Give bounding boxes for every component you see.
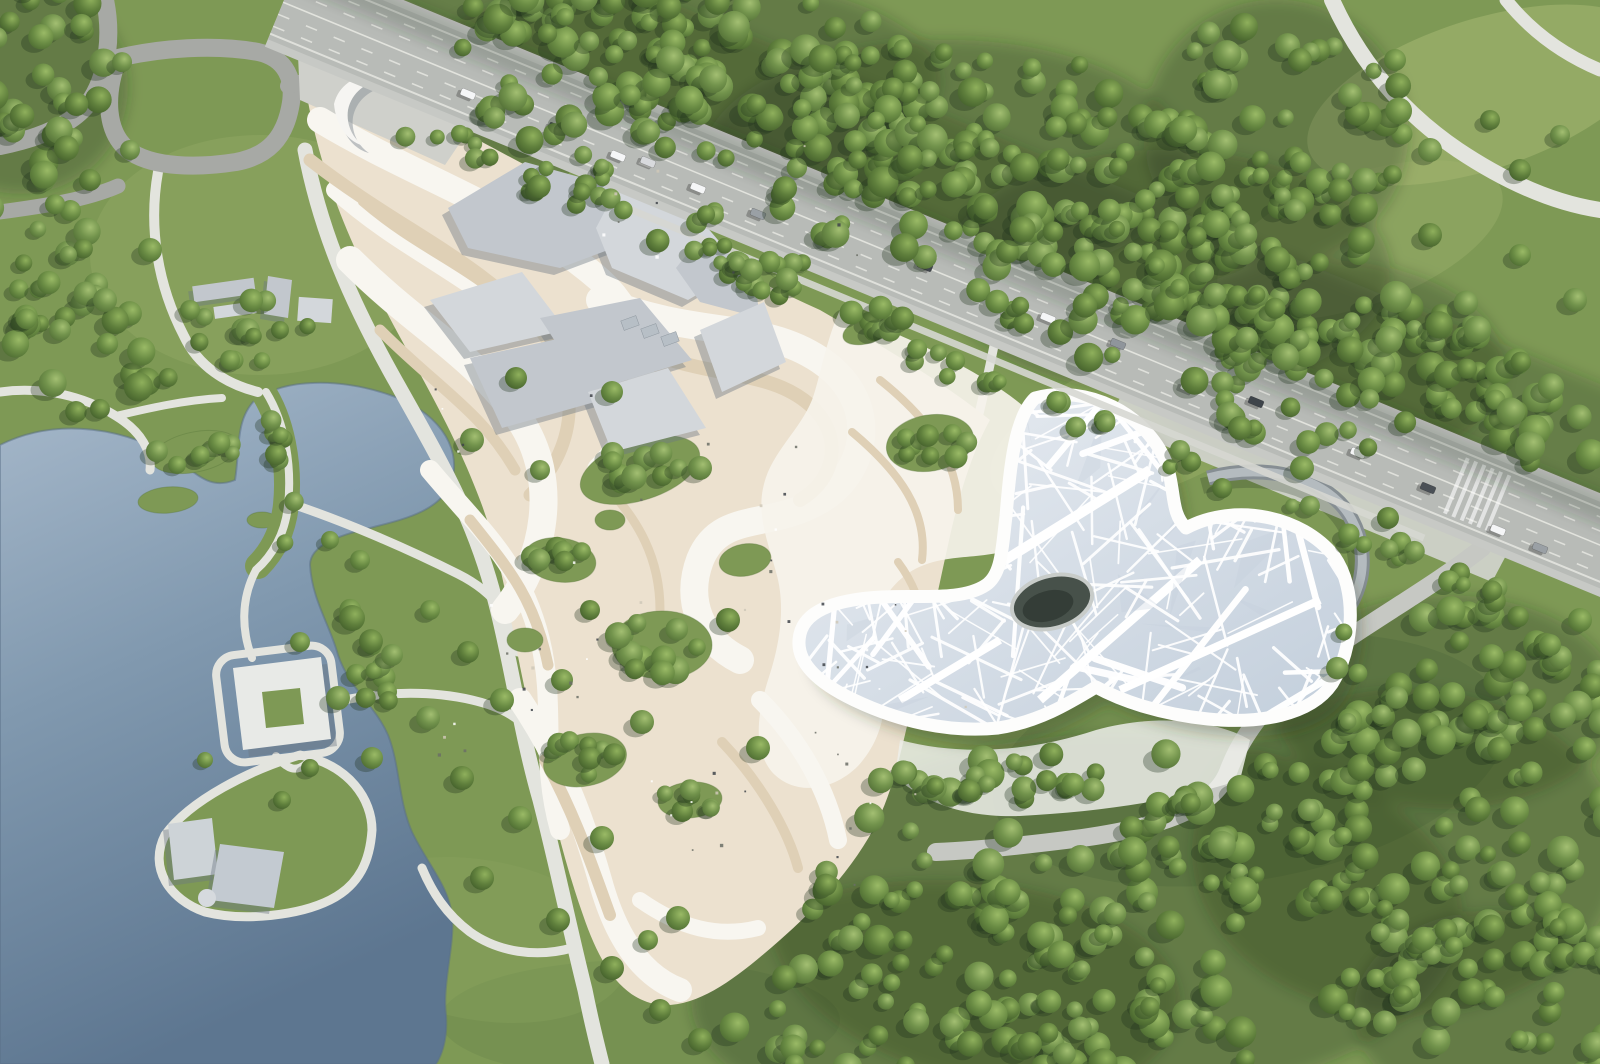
- tree-canopy: [1314, 369, 1333, 388]
- tree-canopy: [1352, 168, 1377, 193]
- tree-canopy: [958, 77, 988, 107]
- tree-canopy: [10, 103, 35, 128]
- tree-canopy: [1074, 343, 1103, 372]
- aerial-render: Aerial masterplan rendering — park, lake…: [0, 0, 1600, 1064]
- tree-canopy: [1411, 851, 1440, 880]
- tree-canopy: [861, 46, 880, 65]
- tree-canopy: [1272, 343, 1299, 370]
- person-dot: [670, 814, 672, 816]
- tree-canopy: [1262, 762, 1279, 779]
- tree-canopy: [891, 307, 914, 330]
- tree-canopy: [1479, 644, 1504, 669]
- tree-canopy: [1480, 110, 1500, 130]
- tree-canopy: [1550, 125, 1570, 145]
- tree-canopy: [1069, 250, 1100, 281]
- tree-canopy: [1497, 398, 1525, 426]
- person-dot: [462, 444, 464, 446]
- tree-canopy: [867, 112, 885, 130]
- person-dot: [804, 145, 806, 147]
- tree-canopy: [79, 169, 101, 191]
- tree-canopy: [1289, 762, 1310, 783]
- tree-canopy: [1376, 900, 1393, 917]
- tree-canopy: [1094, 924, 1113, 943]
- tree-canopy: [1234, 223, 1257, 246]
- person-dot: [769, 570, 772, 573]
- tree-canopy: [451, 125, 468, 142]
- tree-canopy: [1068, 1017, 1092, 1041]
- tree-canopy: [746, 94, 766, 114]
- tree-canopy: [573, 183, 591, 201]
- tree-canopy: [1359, 438, 1377, 456]
- tree-canopy: [717, 150, 734, 167]
- tree-canopy: [1140, 997, 1160, 1017]
- tree-canopy: [868, 768, 893, 793]
- tree-canopy: [2, 330, 30, 358]
- tree-canopy: [1404, 541, 1425, 562]
- tree-canopy: [1170, 440, 1190, 460]
- tree-canopy: [1186, 305, 1218, 337]
- tree-canopy: [815, 874, 837, 896]
- tree-canopy: [654, 137, 676, 159]
- tree-canopy: [899, 187, 917, 205]
- tree-canopy: [381, 644, 403, 666]
- tree-canopy: [1515, 431, 1545, 461]
- person-dot: [822, 603, 825, 606]
- tree-canopy: [54, 135, 79, 160]
- tree-canopy: [977, 52, 994, 69]
- tree-canopy: [939, 368, 956, 385]
- tree-canopy: [605, 622, 632, 649]
- tree-canopy: [720, 1012, 750, 1042]
- person-dot: [760, 504, 763, 507]
- tree-canopy: [1038, 990, 1062, 1014]
- tree-canopy: [1418, 223, 1442, 247]
- tree-canopy: [1285, 499, 1299, 513]
- tree-canopy: [1393, 985, 1412, 1004]
- tree-canopy: [1010, 153, 1039, 182]
- tree-canopy: [1071, 56, 1088, 73]
- tree-canopy: [127, 337, 155, 365]
- tree-canopy: [906, 881, 923, 898]
- person-dot: [914, 793, 916, 795]
- tree-canopy: [1343, 312, 1360, 329]
- tree-canopy: [1239, 105, 1265, 131]
- tree-canopy: [1196, 151, 1226, 181]
- tree-canopy: [546, 908, 570, 932]
- tree-canopy: [1181, 367, 1209, 395]
- tree-canopy: [809, 1040, 825, 1056]
- person-dot: [691, 801, 693, 803]
- tree-canopy: [1508, 831, 1531, 854]
- person-dot: [715, 792, 718, 795]
- tree-canopy: [693, 39, 711, 57]
- tree-canopy: [1413, 683, 1440, 710]
- tree-canopy: [1065, 417, 1086, 438]
- tree-canopy: [1124, 243, 1143, 262]
- tree-canopy: [120, 140, 140, 160]
- tree-canopy: [957, 1031, 983, 1057]
- person-dot: [438, 753, 441, 756]
- boathouse-roof: [210, 844, 284, 908]
- person-dot: [531, 666, 534, 669]
- tree-canopy: [580, 600, 600, 620]
- tree-canopy: [1061, 773, 1084, 796]
- person-dot: [770, 560, 772, 562]
- tree-canopy: [746, 736, 770, 760]
- tree-canopy: [699, 65, 727, 93]
- tree-canopy: [646, 229, 670, 253]
- tree-canopy: [1458, 978, 1485, 1005]
- tree-canopy: [630, 710, 654, 734]
- tree-canopy: [1573, 737, 1597, 761]
- tree-canopy: [70, 14, 92, 36]
- tree-canopy: [1416, 658, 1438, 680]
- tree-canopy: [964, 962, 993, 991]
- person-dot: [457, 450, 459, 452]
- tree-canopy: [1510, 1030, 1528, 1048]
- tree-canopy: [301, 759, 319, 777]
- tree-canopy: [1119, 816, 1142, 839]
- tree-canopy: [561, 111, 587, 137]
- tree-canopy: [271, 321, 289, 339]
- tree-canopy: [254, 352, 271, 369]
- person-dot: [655, 255, 658, 258]
- tree-canopy: [90, 399, 110, 419]
- tree-canopy: [868, 1025, 888, 1045]
- tree-canopy: [603, 451, 622, 470]
- tree-canopy: [844, 130, 867, 153]
- tree-canopy: [290, 632, 310, 652]
- tree-canopy: [430, 130, 445, 145]
- tree-canopy: [848, 150, 866, 168]
- person-dot: [854, 884, 856, 886]
- tree-canopy: [675, 86, 703, 114]
- tree-canopy: [1290, 152, 1311, 173]
- tree-canopy: [1064, 112, 1087, 135]
- tree-canopy: [1010, 216, 1036, 242]
- tree-canopy: [1349, 664, 1368, 683]
- tree-canopy: [1036, 770, 1057, 791]
- tree-canopy: [902, 822, 919, 839]
- tree-canopy: [1027, 921, 1054, 948]
- tree-canopy: [1094, 79, 1123, 108]
- tree-canopy: [1456, 577, 1471, 592]
- tree-canopy: [1109, 158, 1128, 177]
- tree-canopy: [1549, 918, 1567, 936]
- tree-canopy: [1418, 138, 1442, 162]
- tree-canopy: [220, 350, 240, 370]
- tree-canopy: [1563, 288, 1587, 312]
- tree-canopy: [1507, 606, 1528, 627]
- tree-canopy: [1203, 874, 1220, 891]
- person-dot: [443, 736, 446, 739]
- tree-canopy: [878, 993, 894, 1009]
- tree-canopy: [538, 24, 557, 43]
- tree-canopy: [1204, 283, 1227, 306]
- tree-canopy: [1213, 40, 1242, 69]
- tree-canopy: [894, 931, 913, 950]
- person-dot: [837, 754, 839, 756]
- tree-canopy: [1175, 184, 1199, 208]
- tree-canopy: [657, 786, 673, 802]
- tree-canopy: [37, 271, 60, 294]
- tree-canopy: [1538, 373, 1564, 399]
- tree-canopy: [718, 11, 750, 43]
- tree-canopy: [864, 925, 895, 956]
- tree-canopy: [1187, 42, 1204, 59]
- tree-canopy: [1038, 1023, 1058, 1043]
- tree-canopy: [1281, 397, 1301, 417]
- tree-canopy: [656, 46, 685, 75]
- tree-canopy: [30, 161, 58, 189]
- tree-canopy: [688, 456, 712, 480]
- tree-canopy: [589, 67, 608, 86]
- tree-canopy: [999, 970, 1017, 988]
- tree-canopy: [1249, 286, 1266, 303]
- person-dot: [775, 528, 777, 530]
- tree-canopy: [180, 300, 200, 320]
- tree-canopy: [1169, 858, 1187, 876]
- tree-canopy: [1334, 827, 1352, 845]
- person-dot: [856, 254, 858, 256]
- tree-canopy: [65, 401, 86, 422]
- tree-canopy: [1194, 263, 1214, 283]
- tree-canopy: [1070, 157, 1087, 174]
- tree-canopy: [1138, 892, 1156, 910]
- tree-canopy: [1151, 739, 1180, 768]
- tree-canopy: [697, 205, 715, 223]
- tree-canopy: [16, 308, 37, 329]
- tree-canopy: [168, 456, 186, 474]
- tree-canopy: [1385, 98, 1412, 125]
- person-dot: [692, 849, 694, 851]
- tree-canopy: [845, 77, 862, 94]
- tree-canopy: [944, 445, 967, 468]
- tree-canopy: [1435, 817, 1453, 835]
- dock-circle: [198, 889, 216, 907]
- tree-canopy: [208, 432, 230, 454]
- tree-canopy: [1081, 778, 1104, 801]
- tree-canopy: [1170, 279, 1187, 296]
- tree-canopy: [614, 201, 633, 220]
- tree-canopy: [1385, 686, 1408, 709]
- tree-canopy: [603, 743, 625, 765]
- tree-canopy: [834, 103, 860, 129]
- tree-canopy: [861, 963, 883, 985]
- tree-canopy: [1458, 958, 1478, 978]
- tree-canopy: [1097, 107, 1117, 127]
- site-plan-svg: Aerial masterplan rendering — park, lake…: [0, 0, 1600, 1064]
- tree-canopy: [1226, 913, 1245, 932]
- person-dot: [720, 844, 723, 847]
- tree-canopy: [1310, 253, 1328, 271]
- tree-canopy: [528, 175, 551, 198]
- tree-canopy: [29, 221, 46, 238]
- tree-canopy: [1169, 116, 1197, 144]
- tree-canopy: [1380, 281, 1412, 313]
- tree-canopy: [1349, 193, 1378, 222]
- tree-canopy: [1229, 876, 1257, 904]
- tree-canopy: [817, 950, 843, 976]
- person-dot: [602, 233, 605, 236]
- person-dot: [837, 666, 839, 668]
- tree-canopy: [1197, 22, 1220, 45]
- tree-canopy: [1450, 632, 1469, 651]
- tree-canopy: [516, 126, 544, 154]
- tree-canopy: [1441, 398, 1462, 419]
- tree-canopy: [299, 318, 315, 334]
- tree-canopy: [973, 195, 998, 220]
- tree-canopy: [935, 43, 953, 61]
- tree-canopy: [978, 775, 995, 792]
- tree-canopy: [1509, 244, 1531, 266]
- tree-canopy: [939, 1013, 963, 1037]
- person-dot: [879, 688, 881, 690]
- tree-canopy: [356, 688, 376, 708]
- person-dot: [845, 763, 848, 766]
- person-dot: [869, 802, 871, 804]
- tree-canopy: [1212, 478, 1232, 498]
- tree-canopy: [1348, 227, 1375, 254]
- tree-canopy: [903, 1008, 929, 1034]
- boathouse-roof: [168, 818, 218, 880]
- tree-canopy: [1225, 1016, 1257, 1048]
- tree-canopy: [361, 747, 383, 769]
- tree-canopy: [39, 369, 67, 397]
- tree-canopy: [769, 1000, 786, 1017]
- person-dot: [787, 620, 790, 623]
- tree-canopy: [844, 54, 861, 71]
- person-dot: [531, 709, 533, 711]
- person-dot: [656, 170, 659, 173]
- tree-canopy: [350, 550, 370, 570]
- tree-canopy: [1073, 293, 1098, 318]
- person-dot: [815, 732, 817, 734]
- person-dot: [453, 723, 455, 725]
- person-dot: [651, 780, 653, 782]
- tree-canopy: [772, 965, 797, 990]
- tree-canopy: [688, 638, 706, 656]
- tree-canopy: [1159, 220, 1179, 240]
- tree-canopy: [793, 99, 811, 117]
- tree-canopy: [1383, 165, 1402, 184]
- tree-canopy: [1290, 456, 1314, 480]
- tree-canopy: [1352, 843, 1379, 870]
- person-dot: [866, 649, 869, 652]
- tree-canopy: [1228, 416, 1252, 440]
- tree-canopy: [930, 344, 947, 361]
- tree-canopy: [1500, 796, 1529, 825]
- tree-canopy: [49, 319, 71, 341]
- tree-canopy: [946, 351, 965, 370]
- tree-canopy: [0, 12, 20, 32]
- tree-canopy: [869, 296, 893, 320]
- tree-canopy: [1067, 845, 1095, 873]
- tree-canopy: [680, 779, 701, 800]
- tree-canopy: [1265, 298, 1286, 319]
- tree-canopy: [265, 444, 287, 466]
- tree-canopy: [1445, 937, 1463, 955]
- tree-canopy: [618, 31, 638, 51]
- tree-canopy: [93, 288, 117, 312]
- person-dot: [490, 604, 493, 607]
- tree-canopy: [457, 641, 479, 663]
- tree-canopy: [1104, 902, 1127, 925]
- tree-canopy: [1360, 389, 1380, 409]
- tree-canopy: [1073, 960, 1090, 977]
- tree-canopy: [65, 92, 89, 116]
- tree-canopy: [1464, 316, 1491, 343]
- tree-canopy: [1252, 151, 1269, 168]
- tree-canopy: [1200, 975, 1232, 1007]
- tree-canopy: [926, 777, 944, 795]
- tree-canopy: [605, 45, 623, 63]
- person-dot: [435, 388, 437, 390]
- tree-canopy: [590, 826, 614, 850]
- person-dot: [836, 856, 838, 858]
- tree-canopy: [1375, 326, 1402, 353]
- tree-canopy: [32, 63, 54, 85]
- tree-canopy: [1180, 793, 1200, 813]
- tree-canopy: [1373, 1011, 1397, 1035]
- tree-canopy: [197, 752, 213, 768]
- tree-canopy: [1023, 58, 1042, 77]
- tree-canopy: [921, 447, 939, 465]
- tree-canopy: [1264, 246, 1290, 272]
- person-dot: [506, 652, 508, 654]
- tree-canopy: [916, 424, 939, 447]
- person-dot: [590, 394, 593, 397]
- tree-canopy: [822, 220, 850, 248]
- person-dot: [614, 192, 617, 195]
- tree-canopy: [508, 806, 532, 830]
- tree-canopy: [379, 691, 398, 710]
- tree-canopy: [1047, 940, 1075, 968]
- person-dot: [849, 827, 851, 829]
- tree-canopy: [1109, 221, 1125, 237]
- tree-canopy: [1371, 704, 1391, 724]
- person-dot: [464, 749, 467, 752]
- tree-canopy: [1412, 927, 1436, 951]
- tree-canopy: [1017, 1032, 1041, 1056]
- courtyard-inner-lawn: [262, 688, 304, 728]
- person-dot: [795, 446, 797, 448]
- tree-canopy: [920, 81, 940, 101]
- tree-canopy: [838, 925, 863, 950]
- tree-canopy: [261, 410, 282, 431]
- tree-canopy: [1135, 189, 1156, 210]
- tree-canopy: [554, 551, 574, 571]
- tree-canopy: [1487, 737, 1511, 761]
- tree-canopy: [240, 289, 264, 313]
- tree-canopy: [1543, 982, 1564, 1003]
- tree-canopy: [955, 62, 972, 79]
- tree-canopy: [907, 339, 927, 359]
- tree-canopy: [539, 161, 554, 176]
- tree-canopy: [729, 255, 745, 271]
- tree-canopy: [1535, 1033, 1554, 1052]
- tree-canopy: [666, 906, 690, 930]
- tree-canopy: [1547, 836, 1579, 868]
- tree-canopy: [1449, 875, 1468, 894]
- tree-canopy: [273, 791, 291, 809]
- tree-canopy: [1300, 496, 1320, 516]
- tree-canopy: [1482, 580, 1502, 600]
- tree-canopy: [1491, 861, 1516, 886]
- tree-canopy: [600, 956, 624, 980]
- tree-canopy: [1298, 799, 1320, 821]
- tree-canopy: [773, 176, 797, 200]
